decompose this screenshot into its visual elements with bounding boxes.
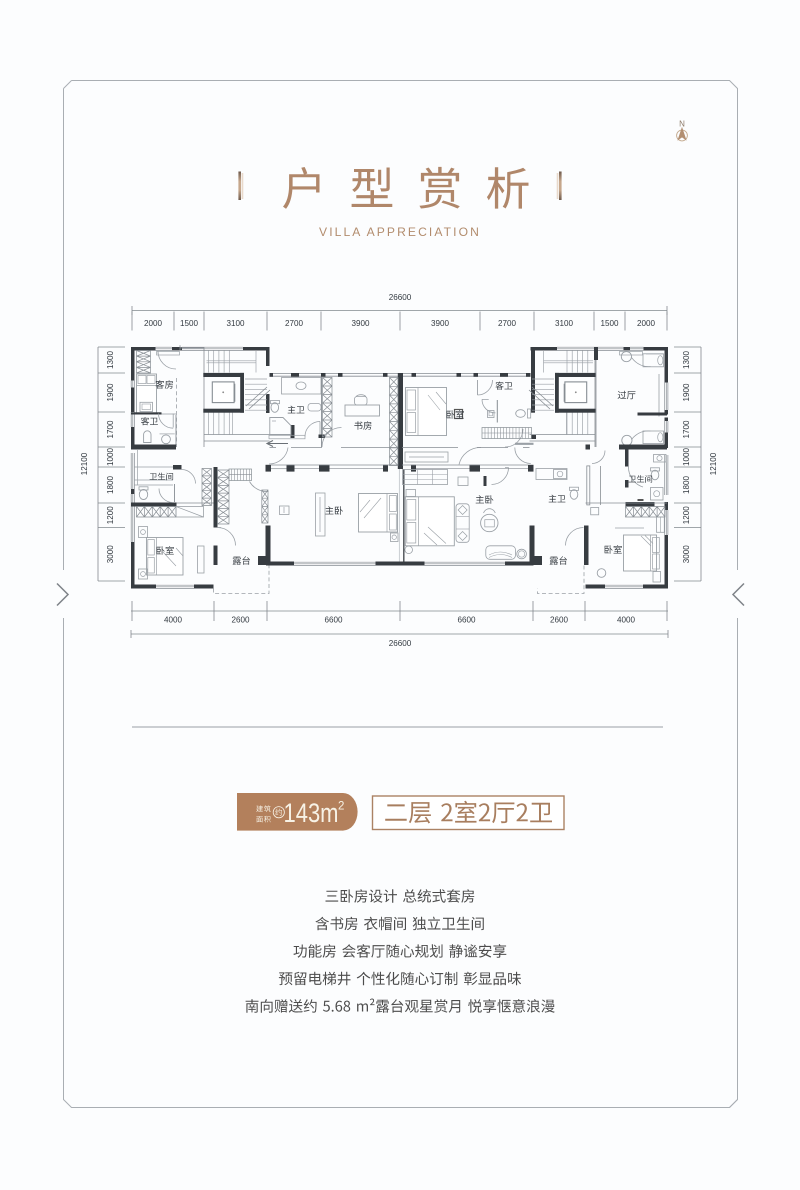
svg-text:6600: 6600 [324, 616, 343, 625]
svg-text:1500: 1500 [600, 319, 619, 328]
svg-text:143m: 143m [284, 798, 339, 828]
svg-text:1900: 1900 [682, 383, 691, 402]
svg-text:1500: 1500 [180, 319, 199, 328]
svg-text:1900: 1900 [106, 383, 115, 402]
svg-text:2: 2 [338, 801, 344, 813]
svg-text:1700: 1700 [682, 420, 691, 439]
svg-text:1000: 1000 [682, 448, 691, 467]
svg-text:4000: 4000 [164, 616, 183, 625]
svg-text:26600: 26600 [389, 639, 412, 648]
svg-text:2000: 2000 [144, 319, 163, 328]
svg-text:12100: 12100 [709, 452, 718, 475]
svg-text:1800: 1800 [106, 476, 115, 495]
svg-text:2700: 2700 [285, 319, 304, 328]
svg-text:VILLA APPRECIATION: VILLA APPRECIATION [319, 225, 481, 239]
svg-text:1300: 1300 [106, 351, 115, 370]
svg-text:2000: 2000 [637, 319, 656, 328]
svg-text:1700: 1700 [106, 420, 115, 439]
svg-text:3000: 3000 [682, 545, 691, 564]
svg-text:1000: 1000 [106, 448, 115, 467]
svg-text:1200: 1200 [682, 506, 691, 525]
svg-text:1800: 1800 [682, 476, 691, 495]
svg-text:12100: 12100 [80, 452, 89, 475]
svg-text:2700: 2700 [498, 319, 517, 328]
svg-text:3100: 3100 [555, 319, 574, 328]
svg-text:3000: 3000 [106, 545, 115, 564]
svg-text:2600: 2600 [550, 616, 569, 625]
svg-text:4000: 4000 [617, 616, 636, 625]
svg-text:3900: 3900 [351, 319, 370, 328]
svg-text:3900: 3900 [431, 319, 450, 328]
svg-text:1200: 1200 [106, 506, 115, 525]
svg-text:1300: 1300 [682, 351, 691, 370]
svg-text:3100: 3100 [226, 319, 245, 328]
svg-text:6600: 6600 [457, 616, 476, 625]
svg-text:2600: 2600 [231, 616, 250, 625]
svg-text:26600: 26600 [389, 293, 412, 302]
